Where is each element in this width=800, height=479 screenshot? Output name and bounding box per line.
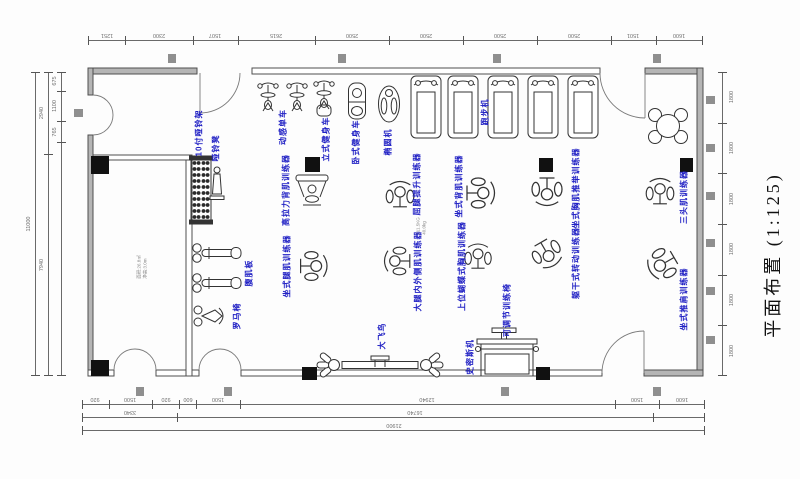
label-dumbbell-bench: 哑铃凳 — [211, 135, 222, 162]
floor-plan-page: 10付哑铃架 哑铃凳 动感单车 立式健身车 卧式健身车 椭圆机 跑步机 高拉力背… — [0, 0, 800, 479]
label-lat-pulldown: 高拉力背肌训练器 — [281, 154, 292, 226]
triceps-machine-icon — [646, 179, 674, 204]
label-elliptical: 椭圆机 — [383, 129, 394, 156]
dim-chain-left-inner: 675 1100 765 — [61, 72, 68, 376]
recumbent-bike-icon — [349, 83, 366, 119]
torso-rotation-icon — [528, 235, 566, 272]
dim-chain-bottom-3: 21900 — [82, 430, 705, 437]
label-seated-back: 坐式背肌训练器 — [454, 155, 465, 218]
label-triceps: 三头肌训练器 — [679, 170, 690, 224]
equipment-symbols — [190, 76, 688, 378]
spinning-bike-icon — [258, 83, 278, 111]
dim-chain-bottom-1: 920 1500 920 600 1500 12940 1500 1600 — [82, 404, 705, 411]
seated-leg-icon — [301, 252, 327, 281]
lat-pulldown-icon — [296, 175, 328, 205]
dim-chain-right: 1800 1800 1800 1800 1800 1800 — [722, 72, 729, 376]
dumbbell-bench-icon — [210, 167, 224, 200]
round-table-icon — [649, 109, 688, 144]
treadmill-icon — [411, 76, 441, 138]
door-top-left — [200, 73, 240, 113]
label-smith-machine: 史密斯机 — [465, 339, 476, 375]
label-torso-rotation: 躯干式转动训练器 — [571, 227, 582, 299]
door-top-right — [600, 73, 645, 118]
door-left-double — [93, 95, 113, 135]
upright-bike-icon — [314, 81, 334, 116]
label-cable-crossover: 大飞鸟 — [377, 323, 388, 350]
label-adjustable-bench: 可调节训练椅 — [502, 283, 513, 337]
label-spinning-bike: 动感单车 — [278, 109, 289, 145]
drawing-title: 平面布置 (1:125) — [759, 172, 785, 338]
doors — [93, 73, 645, 373]
elliptical-icon — [379, 86, 400, 122]
treadmill-icon — [568, 76, 598, 138]
label-ab-board: 腹肌板 — [244, 260, 255, 287]
label-butterfly: 上位蝴蝶式胸肌训练器 — [457, 221, 468, 311]
ab-board-icon — [193, 274, 241, 292]
dumbbell-rack-icon — [190, 156, 213, 224]
label-thigh-machine: 大腿内外侧肌训练器 — [413, 231, 424, 312]
door-bottom-right — [602, 331, 644, 373]
door-bottom-left-2 — [199, 349, 241, 370]
seated-back-icon — [467, 178, 495, 208]
label-treadmill: 跑步机 — [480, 99, 491, 126]
seated-chest-press-icon — [532, 178, 562, 206]
thigh-machine-icon — [385, 247, 410, 275]
leg-raise-icon — [386, 182, 414, 207]
label-chest-press: 坐式胸肌推举训练器 — [571, 148, 582, 229]
dim-chain-left-mid: 2940 7940 — [48, 72, 55, 376]
treadmill-icon — [448, 76, 478, 138]
dim-chain-top: 1251 2300 1507 2615 2500 2500 2500 2500 … — [88, 40, 703, 47]
butterfly-machine-icon — [465, 244, 491, 268]
label-recumbent-bike: 卧式健身车 — [351, 120, 362, 165]
shoulder-press-icon — [643, 245, 682, 285]
label-seated-leg: 坐式腿肌训练器 — [282, 235, 293, 298]
machine-spec-note: 211.5KG40.0kg — [416, 217, 427, 234]
spinning-bike-icon — [287, 83, 307, 111]
label-dumbbell-rack: 10付哑铃架 — [194, 110, 205, 157]
columns — [91, 156, 693, 380]
label-shoulder-press: 坐式推肩训练器 — [679, 268, 690, 331]
label-upright-bike: 立式健身车 — [321, 117, 332, 162]
treadmill-icon — [488, 76, 518, 138]
roman-chair-icon — [194, 306, 223, 326]
smith-machine-icon — [475, 339, 539, 376]
room-area-note: 面积:26.8㎡净高:3.0m — [137, 255, 148, 279]
door-bottom-left-1 — [114, 349, 156, 370]
label-leg-raise: 屈腿提升训练器 — [412, 153, 423, 216]
treadmill-icon — [528, 76, 558, 138]
label-roman-chair: 罗马椅 — [232, 303, 243, 330]
ab-board-icon — [193, 244, 241, 262]
